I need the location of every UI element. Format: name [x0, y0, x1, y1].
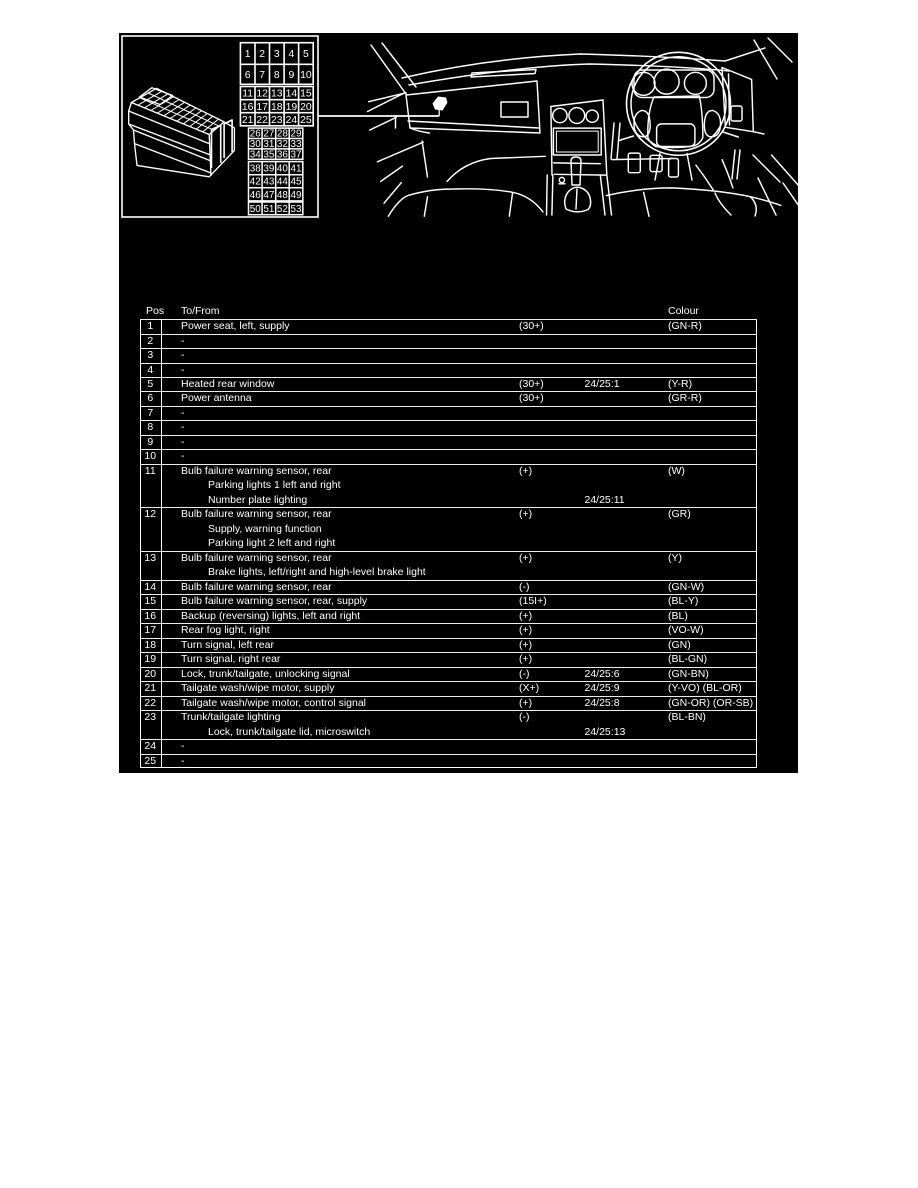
svg-text:11: 11 — [242, 89, 253, 100]
svg-text:27: 27 — [263, 129, 274, 140]
svg-text:17: 17 — [256, 102, 268, 113]
svg-text:18: 18 — [271, 102, 283, 113]
svg-text:46: 46 — [250, 190, 261, 201]
svg-text:53: 53 — [291, 204, 302, 215]
svg-text:9: 9 — [289, 70, 295, 81]
svg-text:23: 23 — [271, 115, 283, 126]
svg-text:7: 7 — [259, 70, 265, 81]
svg-text:3: 3 — [274, 49, 280, 60]
svg-text:20: 20 — [300, 102, 312, 113]
svg-text:22: 22 — [256, 115, 268, 126]
svg-text:42: 42 — [250, 177, 261, 188]
svg-text:33: 33 — [291, 139, 302, 150]
svg-text:34: 34 — [250, 150, 261, 161]
svg-text:24: 24 — [286, 115, 298, 126]
svg-text:45: 45 — [291, 177, 302, 188]
svg-text:31: 31 — [263, 139, 274, 150]
svg-text:6: 6 — [245, 70, 251, 81]
svg-text:2: 2 — [259, 49, 265, 60]
svg-text:49: 49 — [291, 190, 302, 201]
svg-text:13: 13 — [271, 89, 283, 100]
svg-text:41: 41 — [291, 164, 302, 175]
svg-text:21: 21 — [242, 115, 254, 126]
svg-text:1: 1 — [245, 49, 251, 60]
svg-text:15: 15 — [300, 89, 312, 100]
svg-text:51: 51 — [263, 204, 274, 215]
svg-text:32: 32 — [277, 139, 288, 150]
svg-text:10: 10 — [300, 70, 312, 81]
svg-text:19: 19 — [286, 102, 298, 113]
svg-text:52: 52 — [277, 204, 288, 215]
svg-text:28: 28 — [277, 129, 288, 140]
svg-text:26: 26 — [250, 129, 261, 140]
svg-text:48: 48 — [277, 190, 288, 201]
svg-text:12: 12 — [256, 89, 268, 100]
svg-text:16: 16 — [242, 102, 254, 113]
svg-text:30: 30 — [250, 139, 261, 150]
svg-text:50: 50 — [250, 204, 261, 215]
svg-text:35: 35 — [263, 150, 274, 161]
svg-text:36: 36 — [277, 150, 288, 161]
svg-text:43: 43 — [263, 177, 274, 188]
svg-text:14: 14 — [286, 89, 298, 100]
svg-text:44: 44 — [277, 177, 288, 188]
svg-text:5: 5 — [303, 49, 309, 60]
svg-text:29: 29 — [291, 129, 302, 140]
svg-text:25: 25 — [300, 115, 312, 126]
svg-text:40: 40 — [277, 164, 288, 175]
svg-text:4: 4 — [289, 49, 295, 60]
svg-text:38: 38 — [250, 164, 261, 175]
svg-text:37: 37 — [291, 150, 302, 161]
svg-text:47: 47 — [263, 190, 274, 201]
svg-text:8: 8 — [274, 70, 280, 81]
svg-text:39: 39 — [263, 164, 274, 175]
